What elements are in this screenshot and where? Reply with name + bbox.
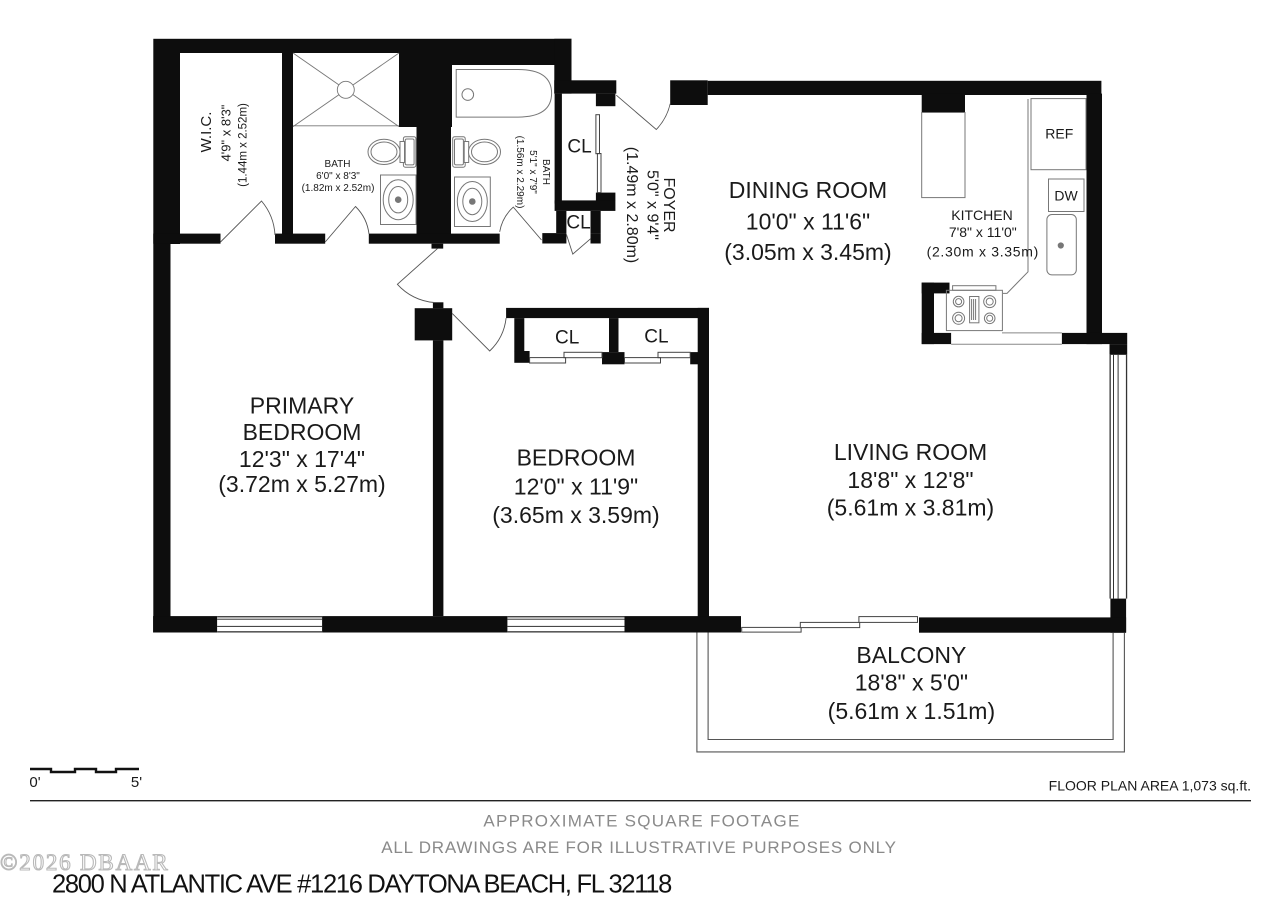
- svg-text:12'3" x 17'4": 12'3" x 17'4": [239, 446, 365, 472]
- svg-text:CL: CL: [555, 328, 579, 349]
- svg-text:10'0" x 11'6": 10'0" x 11'6": [746, 209, 870, 235]
- svg-text:5': 5': [131, 774, 142, 791]
- svg-text:(3.05m x 3.45m): (3.05m x 3.45m): [724, 239, 891, 265]
- svg-text:LIVING ROOM: LIVING ROOM: [834, 439, 987, 465]
- svg-text:12'0" x 11'9": 12'0" x 11'9": [514, 474, 638, 500]
- svg-text:ALL DRAWINGS ARE FOR ILLUSTRAT: ALL DRAWINGS ARE FOR ILLUSTRATIVE PURPOS…: [381, 838, 897, 857]
- svg-text:BATH: BATH: [325, 159, 351, 170]
- svg-text:0': 0': [29, 774, 40, 791]
- svg-text:KITCHEN: KITCHEN: [951, 207, 1012, 223]
- svg-text:BATH5'1" x 7'9"(1.56m x 2.29m): BATH5'1" x 7'9"(1.56m x 2.29m): [514, 136, 551, 209]
- svg-text:BEDROOM: BEDROOM: [517, 445, 636, 471]
- svg-text:4'9" x 8'3": 4'9" x 8'3": [219, 104, 234, 161]
- svg-text:(3.65m x 3.59m): (3.65m x 3.59m): [492, 502, 659, 528]
- svg-text:DW: DW: [1054, 188, 1078, 204]
- svg-text:(3.72m x 5.27m): (3.72m x 5.27m): [218, 471, 385, 497]
- svg-text:6'0" x 8'3": 6'0" x 8'3": [316, 171, 360, 182]
- svg-text:(2.30m x 3.35m): (2.30m x 3.35m): [927, 244, 1039, 260]
- svg-text:BALCONY: BALCONY: [856, 642, 966, 668]
- svg-text:CL: CL: [644, 327, 668, 348]
- svg-text:CL: CL: [567, 137, 591, 158]
- svg-text:(1.82m x 2.52m): (1.82m x 2.52m): [302, 183, 375, 194]
- svg-text:18'8" x 12'8": 18'8" x 12'8": [847, 467, 973, 493]
- svg-text:18'8" x 5'0": 18'8" x 5'0": [855, 670, 968, 696]
- svg-text:BEDROOM: BEDROOM: [243, 419, 362, 445]
- svg-text:(5.61m x 1.51m): (5.61m x 1.51m): [828, 698, 995, 724]
- svg-text:W.I.C.: W.I.C.: [198, 112, 215, 153]
- svg-text:7'8" x 11'0": 7'8" x 11'0": [949, 224, 1017, 240]
- svg-text:(5.61m x 3.81m): (5.61m x 3.81m): [827, 495, 994, 521]
- svg-text:CL: CL: [566, 213, 590, 234]
- svg-text:PRIMARY: PRIMARY: [250, 393, 354, 419]
- svg-text:(1.44m x 2.52m): (1.44m x 2.52m): [238, 103, 250, 187]
- svg-text:REF: REF: [1045, 126, 1073, 142]
- svg-text:FLOOR PLAN AREA 1,073 sq.ft.: FLOOR PLAN AREA 1,073 sq.ft.: [1049, 778, 1251, 794]
- svg-text:APPROXIMATE SQUARE FOOTAGE: APPROXIMATE SQUARE FOOTAGE: [483, 812, 800, 831]
- svg-text:FOYER5'0" x 9'4"(1.49m x 2.80m: FOYER5'0" x 9'4"(1.49m x 2.80m): [623, 147, 677, 263]
- svg-text:DINING ROOM: DINING ROOM: [729, 177, 887, 203]
